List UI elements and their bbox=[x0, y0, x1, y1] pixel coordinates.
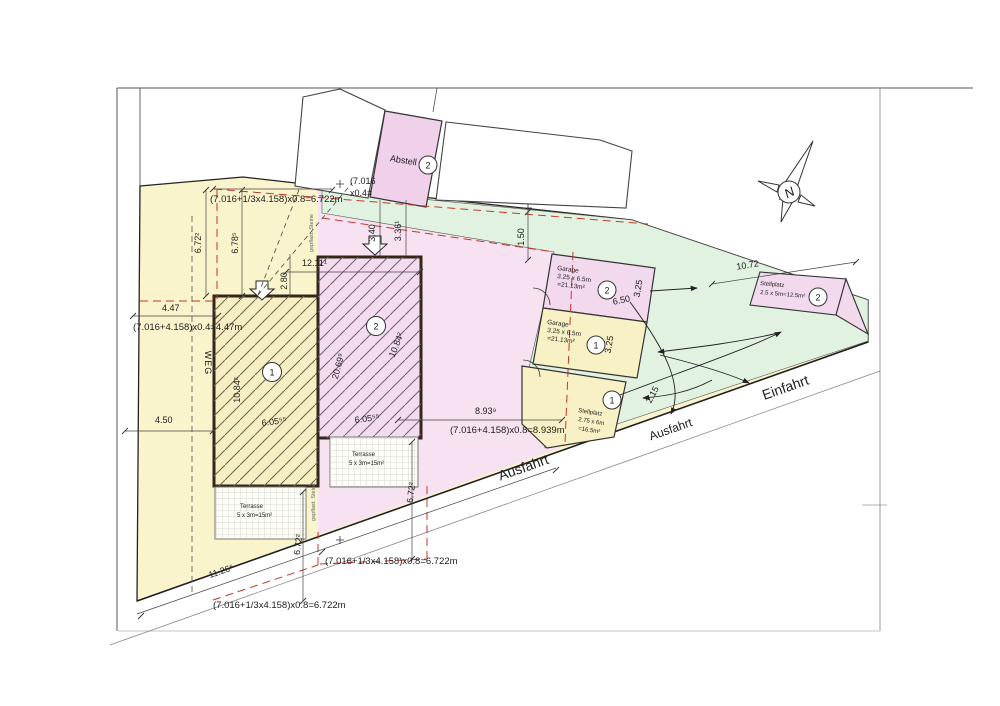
dim-partial-b: x0.4= bbox=[350, 188, 372, 198]
site-plan-drawing: 1 2 2 2 1 1 2 Abstell Garage 3.25 x 6.5m… bbox=[0, 0, 1000, 706]
white-building-right bbox=[436, 122, 632, 208]
stellplatz-1-number: 1 bbox=[603, 391, 621, 409]
terrace-2-label: Terrasse bbox=[352, 452, 376, 458]
dim-336: 3.36¹ bbox=[393, 221, 403, 242]
dim-formula-bottom-mid: (7.016+1/3x4.158)x0.8=6.722m bbox=[325, 556, 458, 567]
abstell-number: 2 bbox=[419, 156, 437, 174]
dim-formula-top: (7.016+1/3x4.158)x0.8=6.722m bbox=[210, 194, 343, 205]
house-1-number-label: 1 bbox=[269, 368, 274, 378]
neighbour-buildings bbox=[295, 88, 632, 208]
garage-2-number-label: 2 bbox=[604, 286, 609, 296]
dim-partial-a: (7.016 bbox=[350, 176, 376, 186]
abstell-number-label: 2 bbox=[425, 161, 430, 171]
dim-893: 8.93⁹ bbox=[475, 406, 497, 416]
paving-note-upper: gepflast. Steine bbox=[309, 214, 315, 252]
dim-1211: 12.11¹ bbox=[302, 258, 327, 268]
dim-formula-447: (7.016+4.158)x0.4=4.47m bbox=[133, 322, 242, 333]
terrace-2-size: 5 x 3m=15m² bbox=[349, 461, 384, 467]
dim-672-bottom-left: 6.72² bbox=[292, 534, 304, 556]
dim-678: 6.78⁵ bbox=[230, 232, 240, 254]
paving-note-lower: gepflast. Steine bbox=[311, 483, 317, 521]
dim-formula-8939: (7.016+4.158)x0.8=8.939m bbox=[450, 425, 565, 436]
dim-house1-height: 10.84² bbox=[232, 377, 242, 403]
house-1-number: 1 bbox=[263, 363, 282, 382]
house-2-number-label: 2 bbox=[373, 322, 378, 332]
terrace-1-label: Terrasse bbox=[240, 504, 264, 510]
dim-280: 2.80 bbox=[279, 272, 289, 290]
dim-150: 1.50 bbox=[516, 228, 526, 246]
north-compass: N bbox=[758, 141, 815, 222]
house-2 bbox=[318, 257, 421, 438]
dim-450: 4.50 bbox=[155, 415, 173, 425]
terrace-1-size: 5 x 3m=15m² bbox=[237, 513, 272, 519]
stellplatz-2-number: 2 bbox=[809, 288, 827, 306]
site-plan: 1 2 2 2 1 1 2 Abstell Garage 3.25 x 6.5m… bbox=[0, 0, 1000, 706]
stellplatz-1-number-label: 1 bbox=[609, 396, 614, 406]
stellplatz-2-number-label: 2 bbox=[815, 293, 820, 303]
dim-340: 3.40 bbox=[367, 224, 377, 242]
ausfahrt-upper-label: Ausfahrt bbox=[647, 415, 694, 443]
garage-1-number-label: 1 bbox=[593, 341, 598, 351]
weg-label: WEG bbox=[203, 351, 213, 376]
house-2-number: 2 bbox=[367, 317, 386, 336]
dim-672-left: 6.72² bbox=[193, 233, 203, 254]
dim-447: 4.47 bbox=[162, 303, 180, 313]
dim-formula-bottom-left: (7.016+1/3x4.158)x0.8=6.722m bbox=[213, 600, 346, 611]
